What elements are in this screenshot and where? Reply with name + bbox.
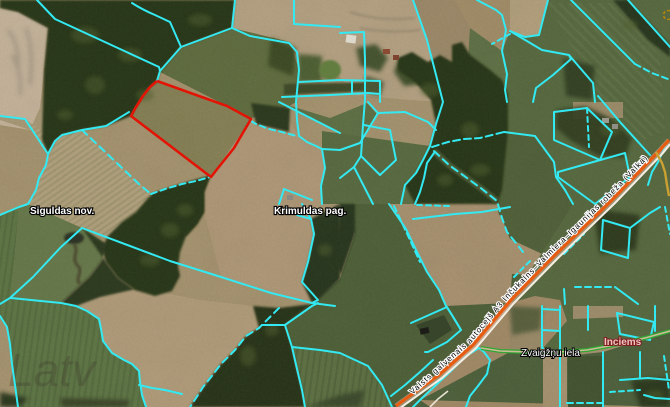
svg-text:Krimuldas pag.: Krimuldas pag. bbox=[274, 206, 346, 217]
svg-text:Inciems: Inciems bbox=[604, 337, 642, 348]
svg-text:Zvaigžņu iela: Zvaigžņu iela bbox=[521, 348, 580, 359]
svg-text:Siguldas nov.: Siguldas nov. bbox=[30, 206, 94, 217]
svg-text:Latv: Latv bbox=[8, 344, 98, 396]
